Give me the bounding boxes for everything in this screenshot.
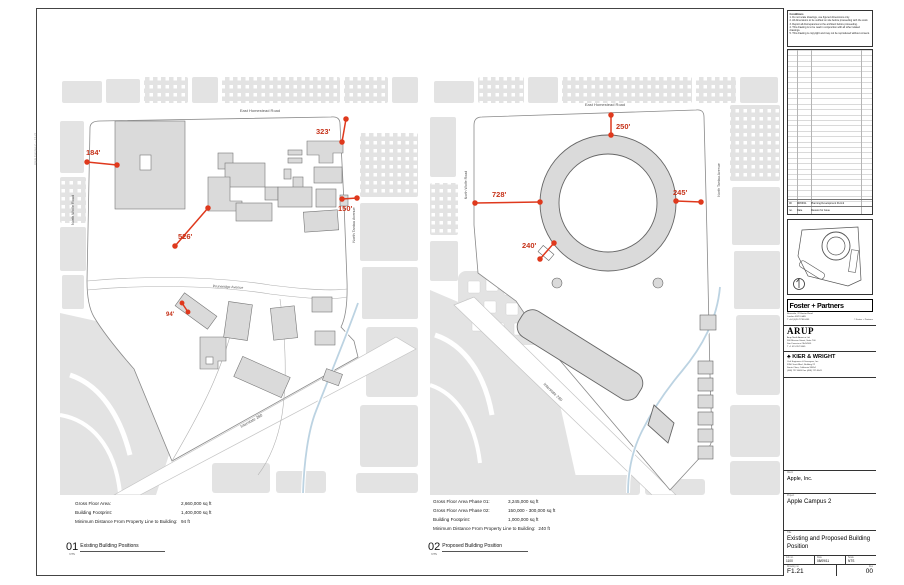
- dim-94: 94': [166, 312, 175, 318]
- dim-250: 250': [616, 122, 631, 131]
- stat-row: Minimum Distance From Property Line to B…: [75, 520, 211, 525]
- key-plan-drawing: [788, 220, 873, 294]
- road-tantau: North Tantau Avenue: [717, 163, 721, 196]
- title-block: Conditions 1. Do not scale drawings, use…: [783, 8, 876, 576]
- dim-323: 323': [316, 127, 331, 136]
- dim-240: 240': [522, 241, 537, 250]
- stat-row: Gross Floor Area:2,660,000 sq ft: [75, 502, 211, 507]
- foster-partners-logo: Foster + Partners: [787, 299, 873, 312]
- dim-245: 245': [673, 188, 688, 197]
- view-title-text: Proposed Building Position: [442, 543, 528, 552]
- project-name: Apple Campus 2: [787, 499, 873, 507]
- drawing-number: F1.21: [787, 568, 833, 575]
- view-scale: NTS: [69, 552, 75, 556]
- sheet-title-section: Title Existing and Proposed Building Pos…: [784, 530, 876, 555]
- job-cell: Job no. 1100: [784, 556, 815, 564]
- arup-logo: ARUP: [787, 327, 873, 336]
- firm-arup: ARUP Arup North America Ltd 560 Mission …: [784, 326, 876, 352]
- stat-row: Minimum Distance From Property Line to B…: [433, 527, 555, 532]
- road-homestead: East Homestead Road: [585, 102, 625, 107]
- dim-184: 184': [86, 148, 101, 157]
- sheet-title: Existing and Proposed Building Position: [787, 536, 873, 551]
- stat-row: Gross Floor Area Phase 02:150,000 - 300,…: [433, 509, 555, 514]
- stat-row: Building Footprint:1,400,000 sq ft: [75, 511, 211, 516]
- road-homestead: East Homestead Road: [240, 108, 280, 113]
- dim-526: 526': [178, 232, 193, 241]
- stats-existing: Gross Floor Area:2,660,000 sq ft Buildin…: [75, 502, 211, 529]
- notes-box: Conditions 1. Do not scale drawings, use…: [787, 10, 873, 47]
- stats-proposed: Gross Floor Area Phase 01:3,245,000 sq f…: [433, 500, 555, 536]
- view-title-proposed: 02 NTS Proposed Building Position: [428, 542, 528, 556]
- map-existing: 184' 323' 150' 526' 94' East Homestead R…: [60, 75, 420, 495]
- key-plan: [787, 219, 873, 295]
- road-wolfe: North Wolfe Road: [71, 195, 75, 225]
- road-wolfe: North Wolfe Road: [464, 171, 468, 200]
- view-number: 01: [66, 542, 78, 552]
- view-number: 02: [428, 542, 440, 552]
- drawing-sheet: Apple Campus 2 — F1.21: [0, 0, 904, 585]
- firm-foster-partners: Foster + Partners Riverside, 22 Hester R…: [784, 298, 876, 326]
- stat-row: Building Footprint:1,000,000 sq ft: [433, 518, 555, 523]
- revision-table: 00 08/09/11 Planning Development Permit …: [787, 49, 873, 215]
- scale-cell: Scale NTS: [846, 556, 876, 564]
- view-title-existing: 01 NTS Existing Building Positions: [66, 542, 165, 556]
- view-scale: NTS: [431, 552, 437, 556]
- date-cell: Date 08/09/11: [815, 556, 846, 564]
- revision-number: 00: [840, 568, 873, 575]
- project-section: Project Apple Campus 2: [784, 493, 876, 530]
- revision-header: no. Date Reason for Issue: [788, 206, 872, 214]
- meta-cells: Job no. 1100 Date 08/09/11 Scale NTS: [784, 555, 876, 564]
- tree-icon: ♣: [787, 354, 791, 360]
- dim-728: 728': [492, 190, 507, 199]
- stat-row: Gross Floor Area Phase 01:3,245,000 sq f…: [433, 500, 555, 505]
- firm-kier-wright: ♣ KIER & WRIGHT Civil Engineers & Survey…: [784, 352, 876, 378]
- client-name: Apple, Inc.: [787, 476, 873, 482]
- drawing-number-row: Drawing no. F1.21 Rev 00: [784, 564, 876, 576]
- dim-150: 150': [338, 204, 353, 213]
- road-tantau: North Tantau Avenue: [352, 207, 356, 242]
- map-proposed: 250' 728' 245' 240' East Homestead Road …: [430, 75, 780, 495]
- view-title-text: Existing Building Positions: [80, 543, 164, 552]
- client-section: Client Apple, Inc.: [784, 470, 876, 493]
- plot-stamp: Apple Campus 2 — F1.21: [33, 133, 37, 165]
